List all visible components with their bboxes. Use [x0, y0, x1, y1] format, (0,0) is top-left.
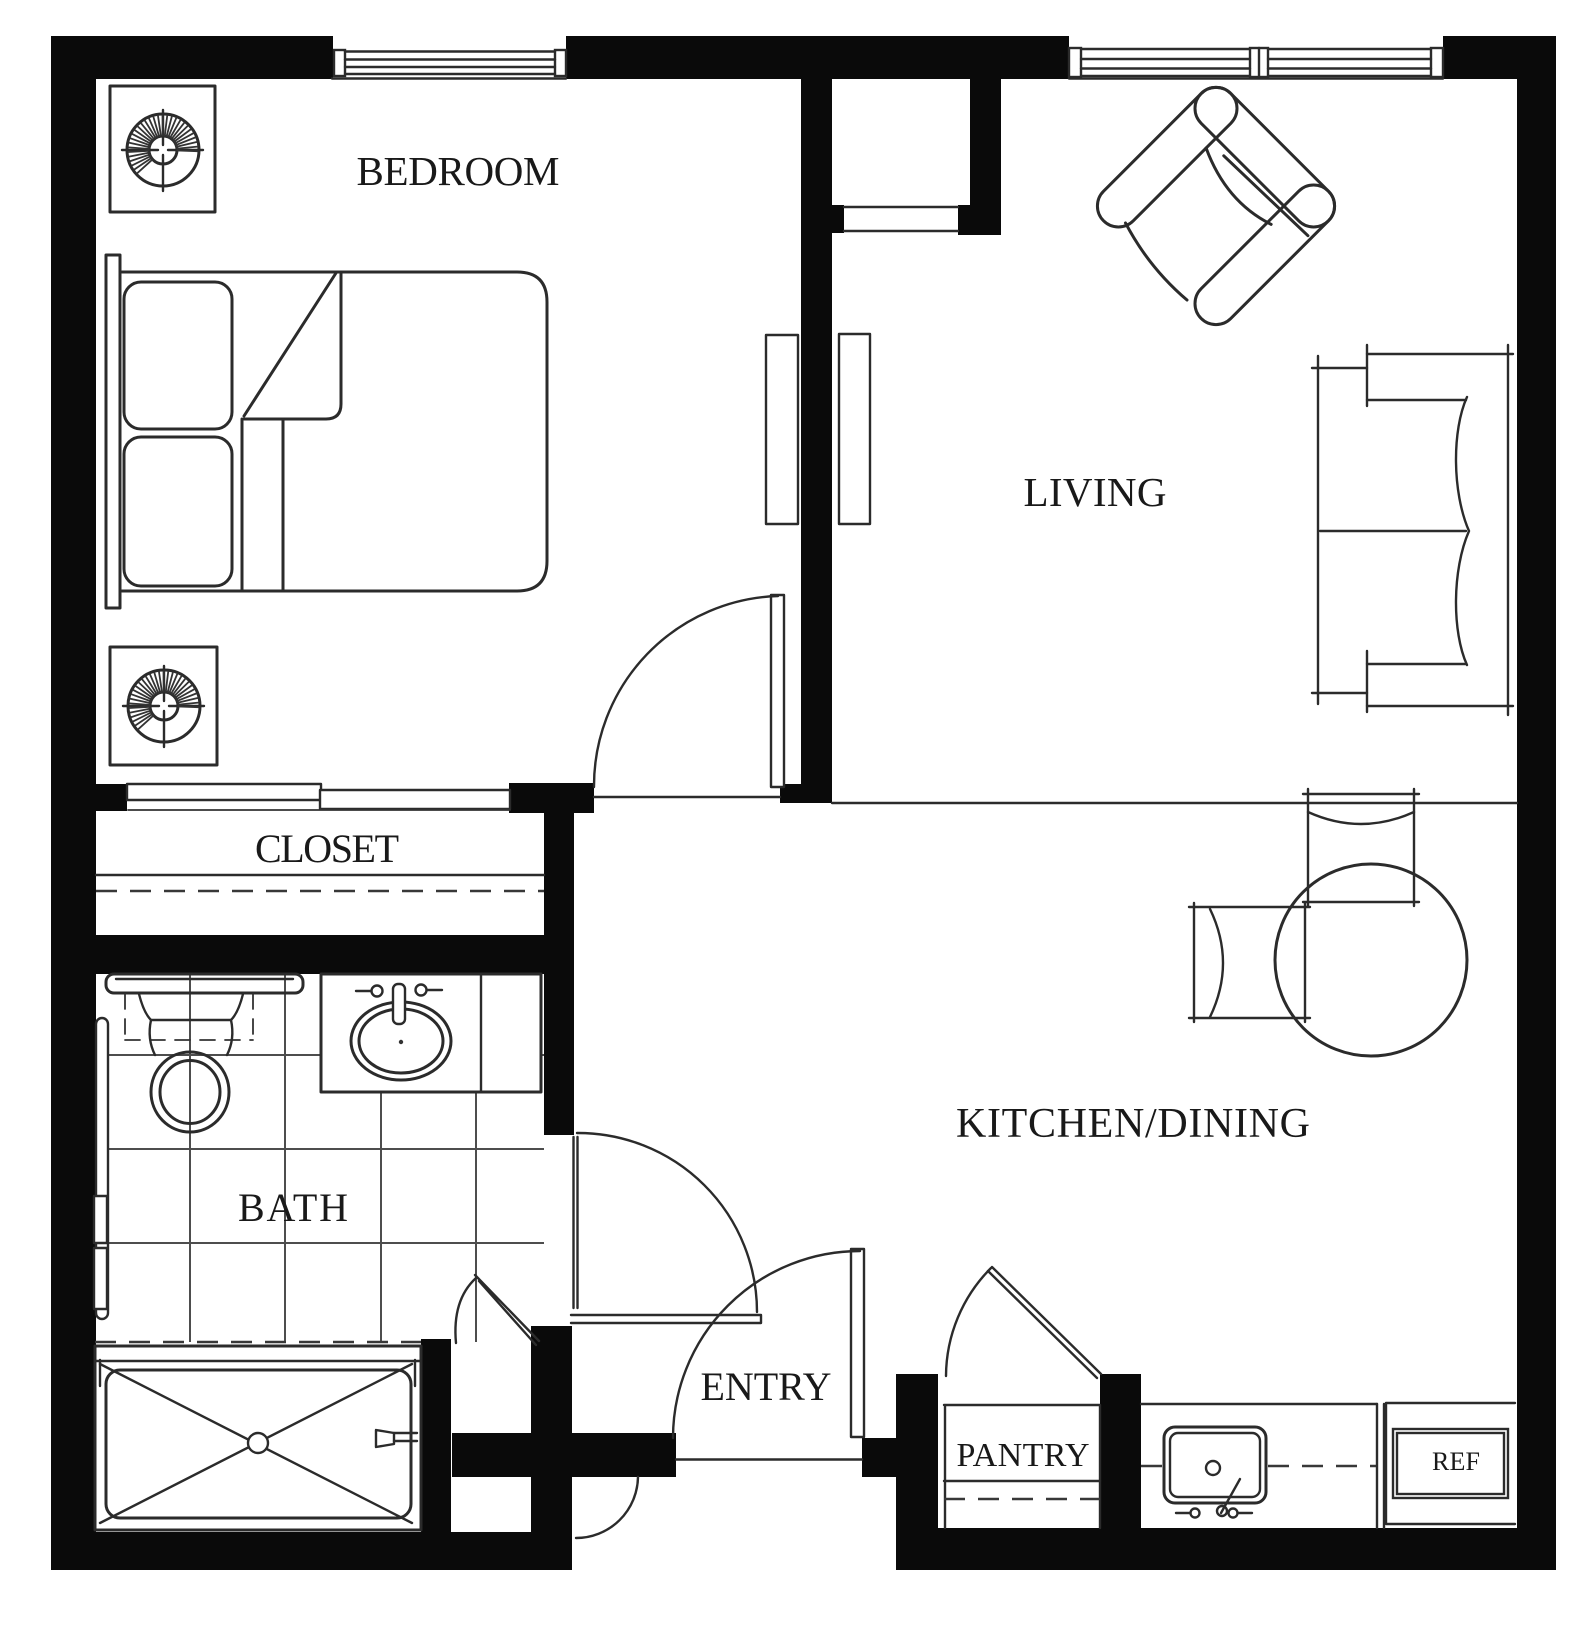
svg-text:CLOSET: CLOSET [255, 826, 399, 871]
svg-text:LIVING: LIVING [1024, 469, 1167, 515]
svg-text:ENTRY: ENTRY [701, 1364, 832, 1409]
svg-text:BATH: BATH [238, 1185, 348, 1230]
svg-text:PANTRY: PANTRY [957, 1437, 1090, 1474]
svg-text:REF: REF [1432, 1447, 1480, 1476]
svg-text:KITCHEN/DINING: KITCHEN/DINING [956, 1101, 1310, 1147]
svg-text:BEDROOM: BEDROOM [357, 148, 560, 194]
